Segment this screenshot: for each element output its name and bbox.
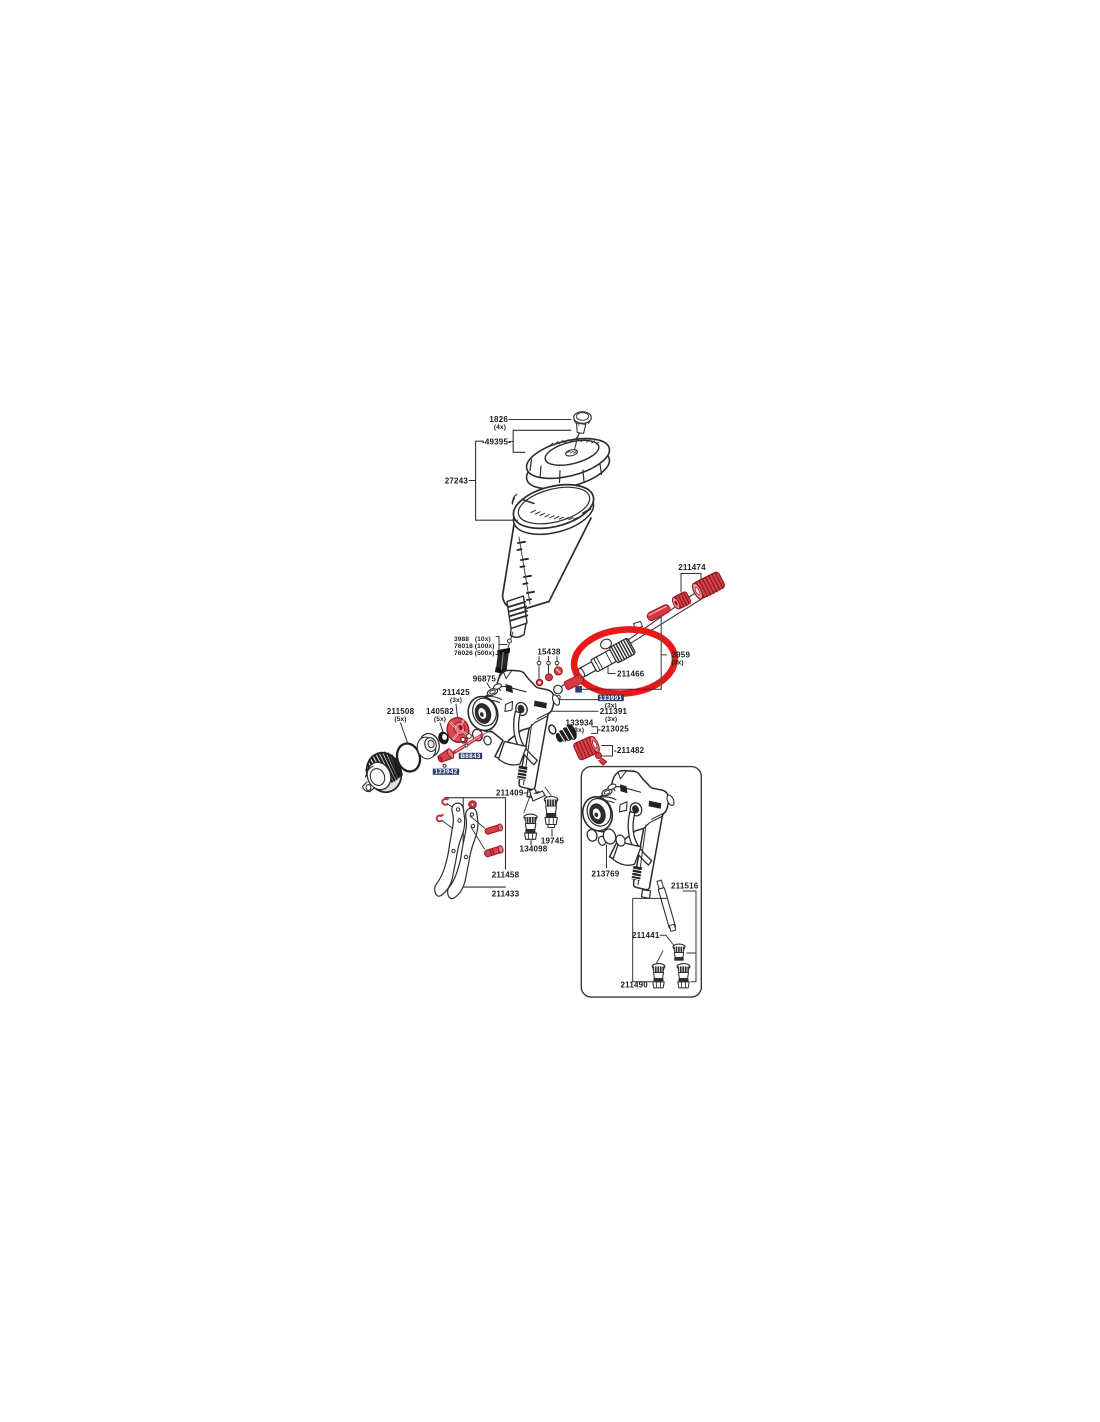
svg-text:(3x): (3x) xyxy=(450,697,462,704)
svg-text:3959: 3959 xyxy=(672,651,691,660)
svg-text:211474: 211474 xyxy=(678,563,706,572)
svg-text:133991: 133991 xyxy=(599,695,622,702)
svg-text:211391: 211391 xyxy=(600,707,628,716)
svg-text:211516: 211516 xyxy=(671,882,699,891)
svg-text:15438: 15438 xyxy=(537,648,561,657)
svg-text:96875: 96875 xyxy=(473,675,497,684)
svg-text:-49395-: -49395- xyxy=(482,438,511,447)
svg-text:76026 (500x): 76026 (500x) xyxy=(454,650,494,657)
svg-text:76018 (100x): 76018 (100x) xyxy=(454,643,494,650)
svg-text:(3x): (3x) xyxy=(605,716,617,723)
svg-text:133942: 133942 xyxy=(434,769,457,776)
svg-text:211409: 211409 xyxy=(496,789,524,798)
svg-text:211425: 211425 xyxy=(442,688,470,697)
svg-text:B6843: B6843 xyxy=(460,753,480,760)
svg-text:211433: 211433 xyxy=(492,890,520,899)
svg-text:(5x): (5x) xyxy=(434,716,446,723)
svg-text:211458: 211458 xyxy=(492,871,520,880)
svg-text:134098: 134098 xyxy=(520,845,548,854)
svg-text:1826: 1826 xyxy=(489,415,508,424)
svg-text:(4x): (4x) xyxy=(494,424,506,431)
svg-text:(5x): (5x) xyxy=(394,716,406,723)
svg-text:213025: 213025 xyxy=(601,725,629,734)
svg-text:140582: 140582 xyxy=(426,707,454,716)
svg-text:213769: 213769 xyxy=(592,870,620,879)
svg-text:27243: 27243 xyxy=(445,477,469,486)
svg-text:211508: 211508 xyxy=(387,707,415,716)
svg-text:211490: 211490 xyxy=(621,981,649,990)
svg-text:-211482: -211482 xyxy=(614,746,645,755)
svg-text:211441: 211441 xyxy=(632,931,660,940)
svg-text:(3x): (3x) xyxy=(672,660,684,667)
svg-text:3988 (10x): 3988 (10x) xyxy=(454,636,491,643)
svg-text:211466: 211466 xyxy=(617,670,645,679)
